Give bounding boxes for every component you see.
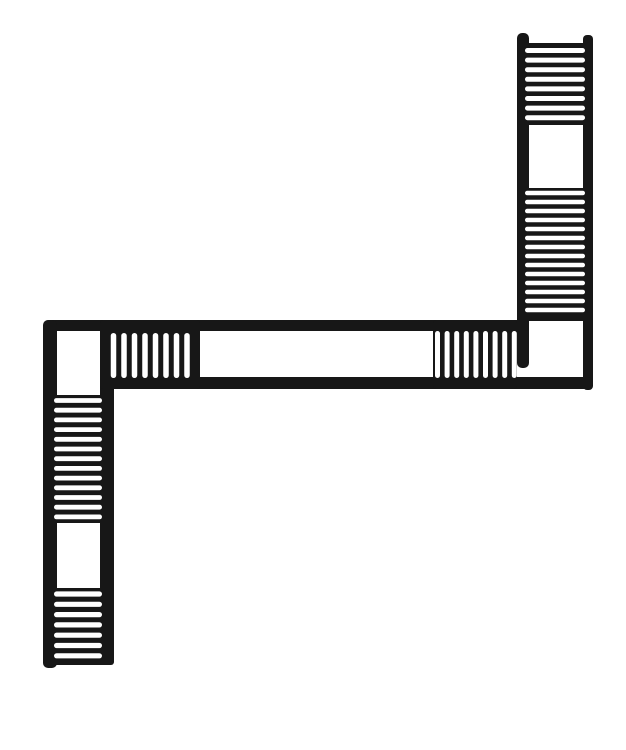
right-flight-lower-treads-tread-slot bbox=[525, 191, 585, 196]
left-flight-upper-treads-tread-slot bbox=[54, 456, 102, 461]
left-flight-upper-treads-tread-slot bbox=[54, 485, 102, 490]
left-flight-lower-treads-tread-slot bbox=[54, 633, 102, 638]
left-flight-upper-treads-tread-slot bbox=[54, 476, 102, 481]
corridor-left-treads-tread-slot bbox=[121, 333, 127, 378]
right-flight-upper-treads-tread-slot bbox=[525, 77, 585, 82]
left-flight-lower-treads-tread-slot bbox=[54, 602, 102, 607]
corridor-right-treads-tread-slot bbox=[445, 331, 450, 378]
staircase-plan-svg bbox=[0, 0, 626, 750]
left-corner-landing bbox=[57, 332, 100, 394]
right-corner-landing bbox=[530, 322, 583, 377]
left-flight-upper-treads-tread-slot bbox=[54, 495, 102, 500]
left-flight-upper-treads-tread-slot bbox=[54, 418, 102, 423]
corridor-left-treads-tread-slot bbox=[184, 333, 190, 378]
right-flight-lower-treads-tread-slot bbox=[525, 263, 585, 268]
corridor-right-treads-tread-slot bbox=[483, 331, 488, 378]
right-flight-lower-treads-tread-slot bbox=[525, 245, 585, 250]
left-flight-lower-treads-tread-slot bbox=[54, 591, 102, 596]
corridor-left-treads-tread-slot bbox=[163, 333, 169, 378]
corridor-left-treads-tread-slot bbox=[111, 333, 117, 378]
corridor-left-treads-tread-slot bbox=[142, 333, 148, 378]
corridor-right-treads-tread-slot bbox=[512, 331, 517, 378]
left-flight-upper-treads-tread-slot bbox=[54, 505, 102, 510]
right-flight-lower-treads-tread-slot bbox=[525, 290, 585, 295]
right-flight-upper-treads bbox=[517, 43, 593, 125]
left-flight-upper-treads-tread-slot bbox=[54, 437, 102, 442]
corridor-right-treads-tread-slot bbox=[464, 331, 469, 378]
right-flight-lower-treads-tread-slot bbox=[525, 281, 585, 286]
right-flight-lower-treads-tread-slot bbox=[525, 227, 585, 232]
left-flight-lower-treads-tread-slot bbox=[54, 612, 102, 617]
right-flight-upper-treads-tread-slot bbox=[525, 106, 585, 111]
corridor-right-treads-tread-slot bbox=[493, 331, 498, 378]
right-flight-lower-treads-tread-slot bbox=[525, 308, 585, 313]
left-flight-upper-treads-tread-slot bbox=[54, 447, 102, 452]
right-flight-upper-treads-tread-slot bbox=[525, 58, 585, 63]
right-flight-lower-treads-tread-slot bbox=[525, 236, 585, 241]
corridor-left-treads-tread-slot bbox=[174, 333, 180, 378]
left-flight-upper-treads-tread-slot bbox=[54, 427, 102, 432]
left-flight-upper-treads-tread-slot bbox=[54, 515, 102, 520]
left-flight-upper-treads-tread-slot bbox=[54, 466, 102, 471]
left-flight-upper-treads-tread-slot bbox=[54, 408, 102, 413]
corridor-right-treads-tread-slot bbox=[435, 331, 440, 378]
right-flight-upper-treads-tread-slot bbox=[525, 67, 585, 72]
right-flight-lower-treads-tread-slot bbox=[525, 218, 585, 223]
corridor-left-treads-tread-slot bbox=[153, 333, 159, 378]
left-flight-lower-treads-tread-slot bbox=[54, 653, 102, 658]
corridor-hall bbox=[202, 331, 433, 377]
staircase-plan-diagram bbox=[0, 0, 626, 750]
right-flight-upper-treads-tread-slot bbox=[525, 96, 585, 101]
right-flight-lower-treads-tread-slot bbox=[525, 254, 585, 259]
left-flight-lower-treads-tread-slot bbox=[54, 622, 102, 627]
right-flight-upper-treads-tread-slot bbox=[525, 115, 585, 120]
right-flight-lower-treads-tread-slot bbox=[525, 272, 585, 277]
left-flight-upper-treads-tread-slot bbox=[54, 398, 102, 403]
right-flight-lower-treads-tread-slot bbox=[525, 200, 585, 205]
corridor-right-treads-tread-slot bbox=[473, 331, 478, 378]
right-flight-landing bbox=[529, 126, 583, 187]
right-flight-lower-treads-tread-slot bbox=[525, 299, 585, 304]
right-flight-upper-treads-tread-slot bbox=[525, 86, 585, 91]
left-flight-landing bbox=[57, 523, 100, 588]
corridor-right-treads-tread-slot bbox=[502, 331, 507, 378]
left-flight-lower-treads-tread-slot bbox=[54, 643, 102, 648]
corridor-right-treads-tread-slot bbox=[454, 331, 459, 378]
corridor-left-treads-tread-slot bbox=[132, 333, 138, 378]
right-flight-lower-treads-tread-slot bbox=[525, 209, 585, 214]
right-flight-upper-treads-tread-slot bbox=[525, 48, 585, 53]
staircase-plan-page bbox=[0, 0, 626, 750]
